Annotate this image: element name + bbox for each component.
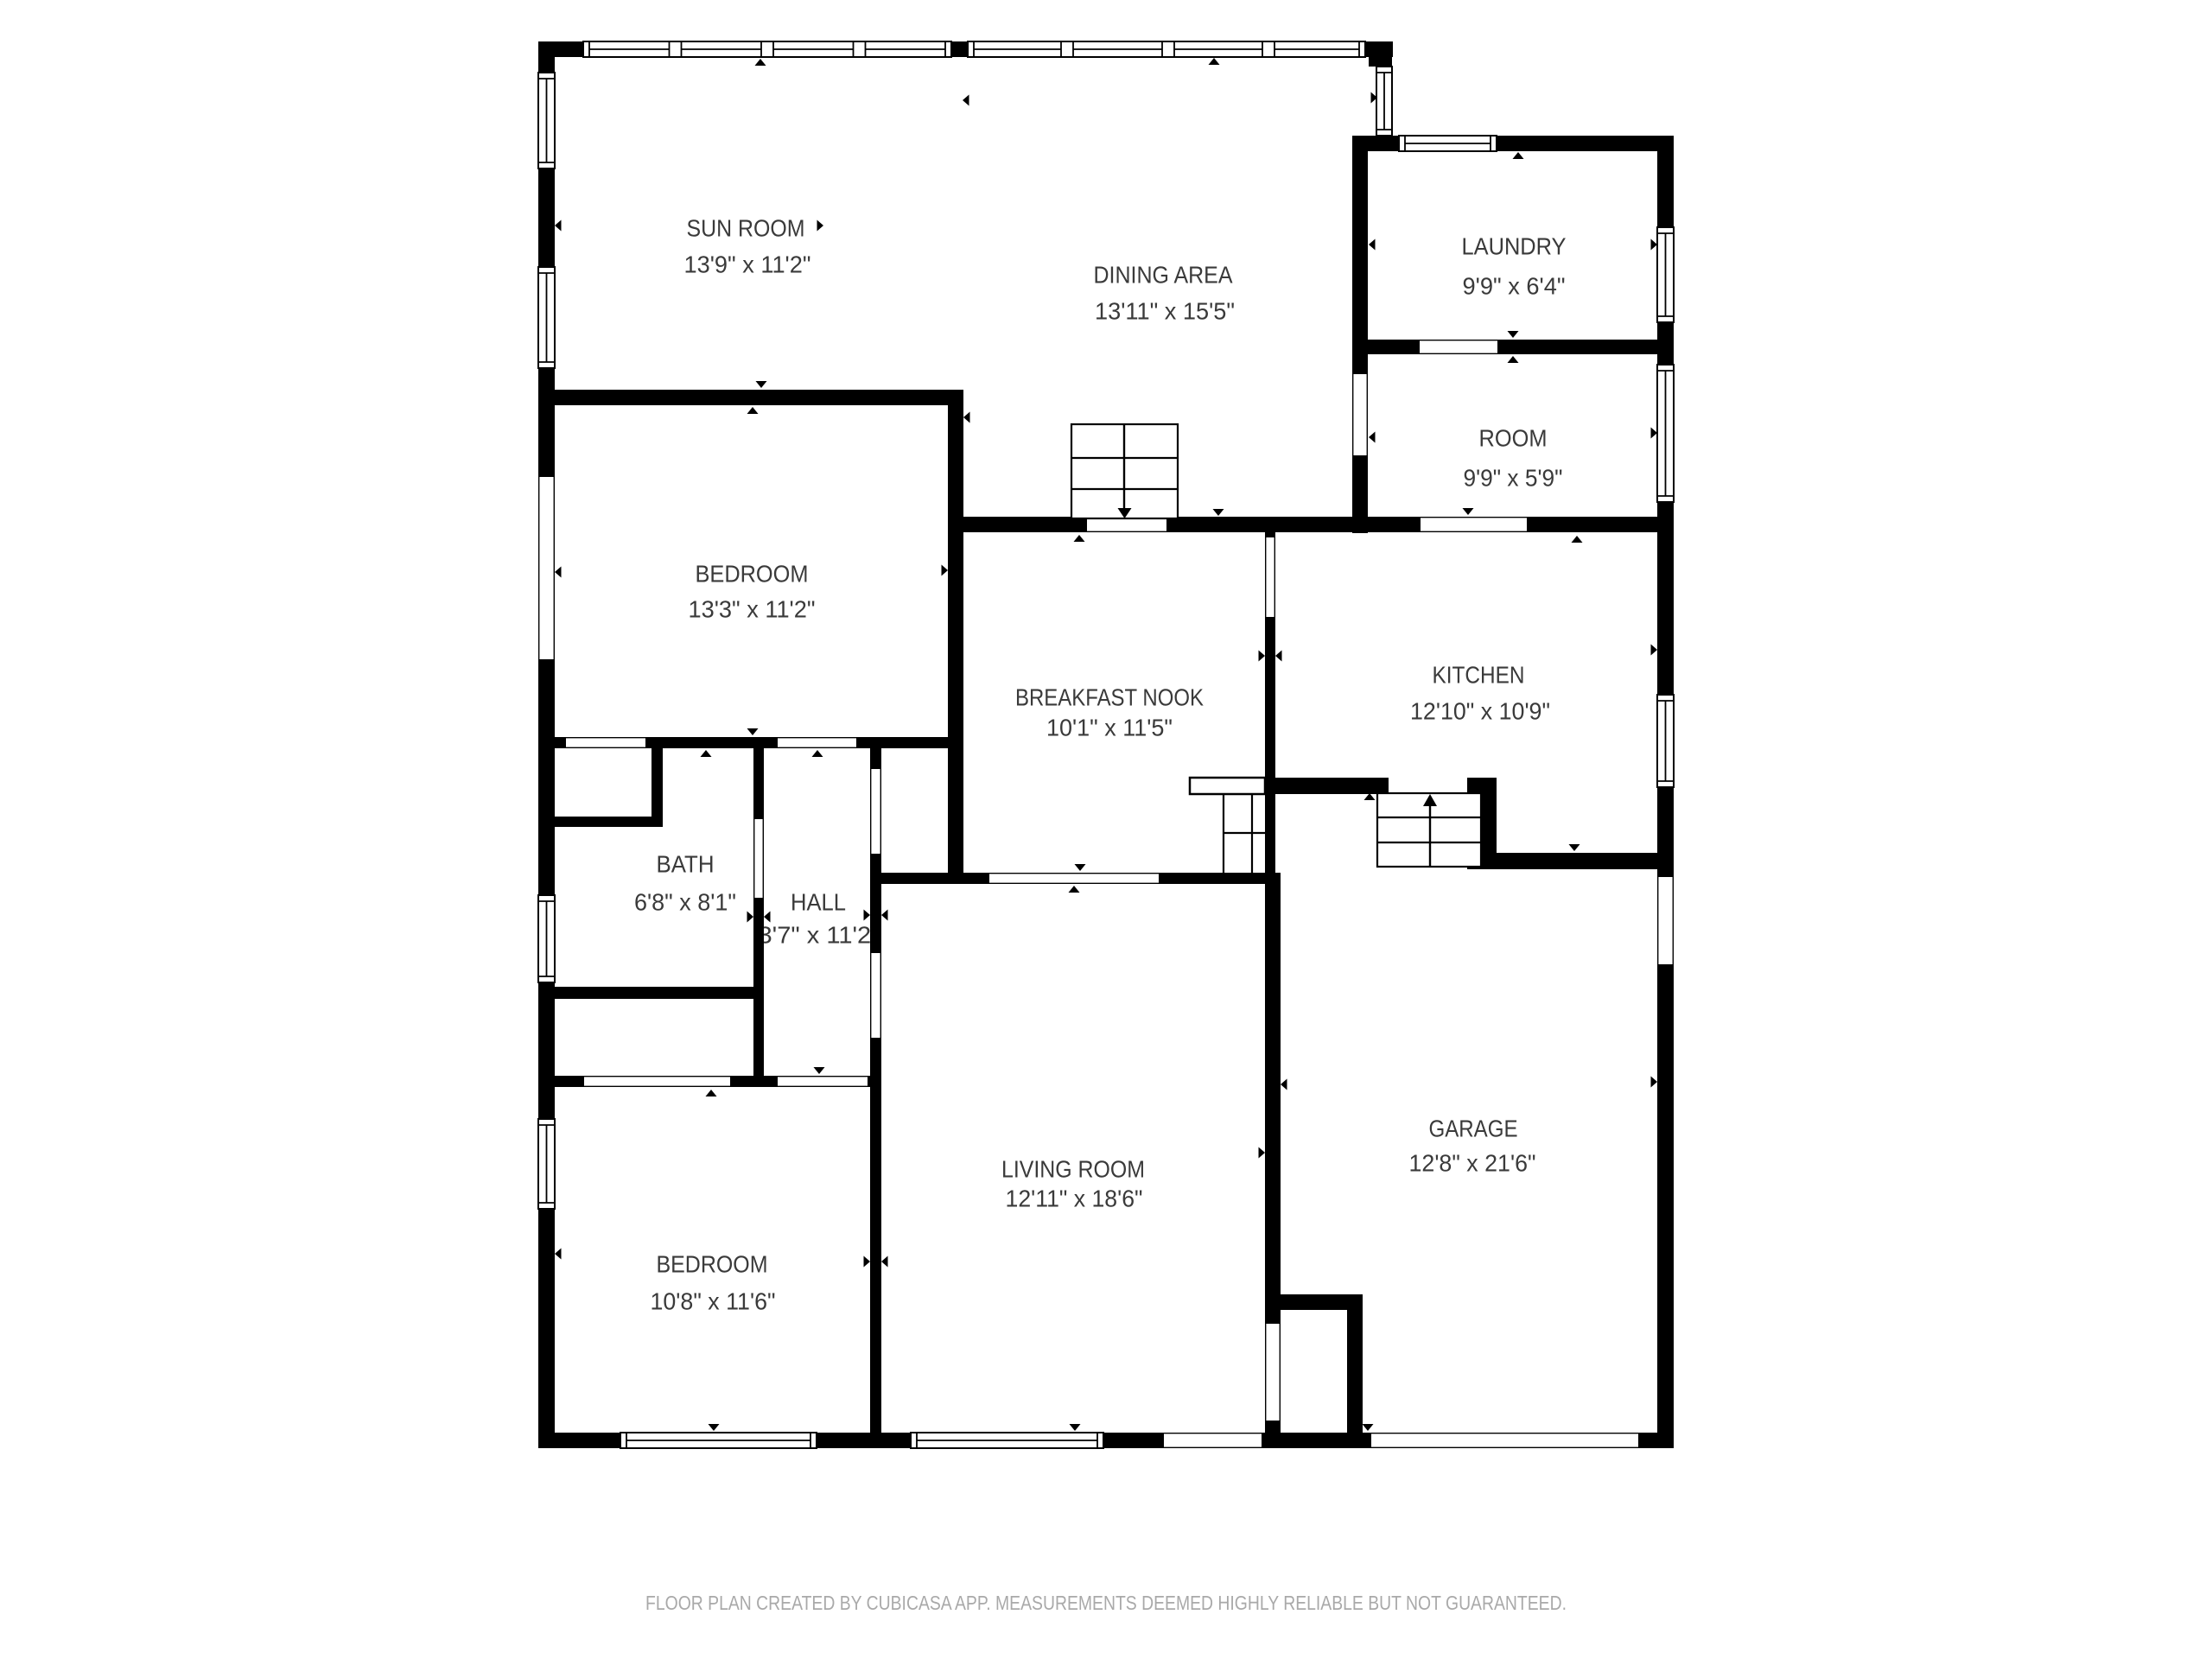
svg-text:12'10" x 10'9": 12'10" x 10'9" — [1410, 698, 1550, 725]
svg-text:13'3" x 11'2": 13'3" x 11'2" — [689, 596, 816, 623]
svg-text:6'8" x 8'1": 6'8" x 8'1" — [634, 889, 736, 916]
svg-text:GARAGE: GARAGE — [1429, 1116, 1518, 1142]
svg-text:LAUNDRY: LAUNDRY — [1462, 233, 1567, 260]
svg-text:13'9" x 11'2": 13'9" x 11'2" — [684, 251, 811, 278]
svg-text:9'9" x 5'9": 9'9" x 5'9" — [1464, 465, 1563, 492]
svg-text:9'9" x 6'4": 9'9" x 6'4" — [1463, 273, 1566, 300]
svg-text:BEDROOM: BEDROOM — [696, 561, 809, 588]
svg-text:FLOOR PLAN CREATED BY CUBICASA: FLOOR PLAN CREATED BY CUBICASA APP. MEAS… — [645, 1592, 1567, 1614]
svg-text:13'11" x 15'5": 13'11" x 15'5" — [1095, 298, 1235, 325]
svg-text:SUN ROOM: SUN ROOM — [687, 215, 805, 242]
svg-text:3'7" x 11'2": 3'7" x 11'2" — [759, 922, 880, 949]
svg-text:10'1" x 11'5": 10'1" x 11'5" — [1046, 715, 1173, 741]
svg-text:BATH: BATH — [657, 851, 715, 878]
svg-text:BREAKFAST NOOK: BREAKFAST NOOK — [1015, 684, 1204, 711]
svg-text:KITCHEN: KITCHEN — [1433, 662, 1525, 689]
svg-text:HALL: HALL — [791, 889, 846, 916]
svg-text:12'8" x 21'6": 12'8" x 21'6" — [1409, 1150, 1536, 1177]
svg-text:DINING AREA: DINING AREA — [1094, 262, 1233, 289]
svg-text:12'11" x 18'6": 12'11" x 18'6" — [1006, 1185, 1143, 1212]
svg-text:ROOM: ROOM — [1479, 425, 1548, 452]
svg-text:BEDROOM: BEDROOM — [657, 1251, 768, 1278]
svg-text:10'8" x 11'6": 10'8" x 11'6" — [651, 1288, 776, 1315]
svg-text:LIVING ROOM: LIVING ROOM — [1001, 1156, 1145, 1183]
